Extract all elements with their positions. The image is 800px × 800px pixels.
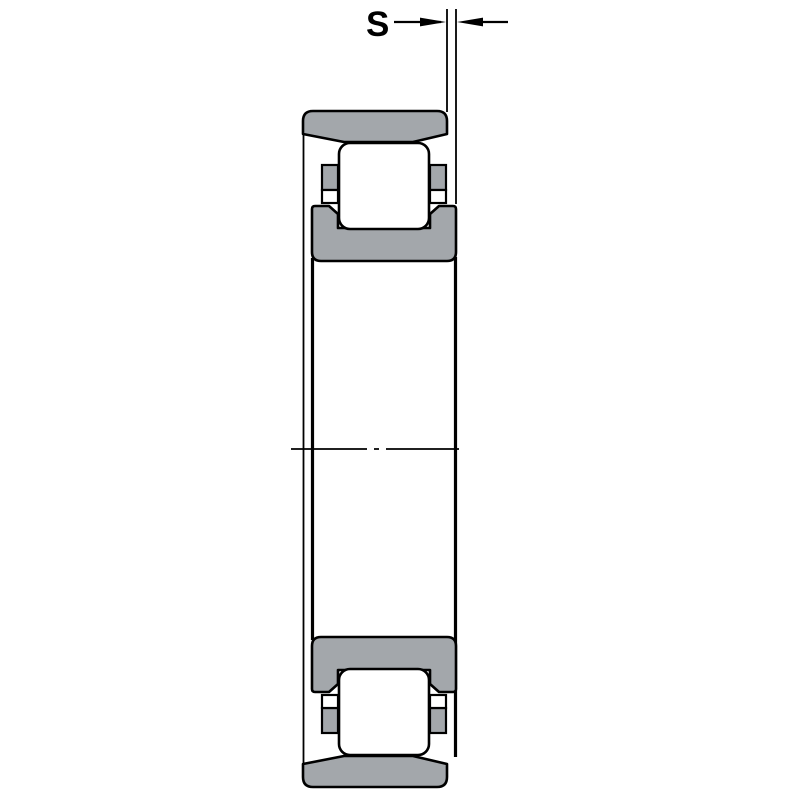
cage-top-left-section	[322, 165, 338, 190]
s-dimension-label: S	[366, 5, 389, 44]
cage-bottom-right-section	[430, 708, 446, 733]
roller-top-section	[339, 143, 429, 229]
cage-pocket-top-left	[322, 190, 338, 203]
cage-pocket-bottom-left	[322, 695, 338, 708]
outer-ring-top-section	[303, 111, 447, 142]
cage-bottom-left-section	[322, 708, 338, 733]
bearing-cross-section-drawing: S	[0, 0, 800, 800]
s-arrowhead-left	[420, 18, 446, 27]
roller-bottom-section	[339, 669, 429, 755]
cage-pocket-top-right	[430, 190, 446, 203]
cage-pocket-bottom-right	[430, 695, 446, 708]
bearing-drawing-canvas: S	[0, 0, 800, 800]
s-arrowhead-right	[457, 18, 483, 27]
outer-ring-bottom-section	[303, 756, 447, 787]
cage-top-right-section	[430, 165, 446, 190]
